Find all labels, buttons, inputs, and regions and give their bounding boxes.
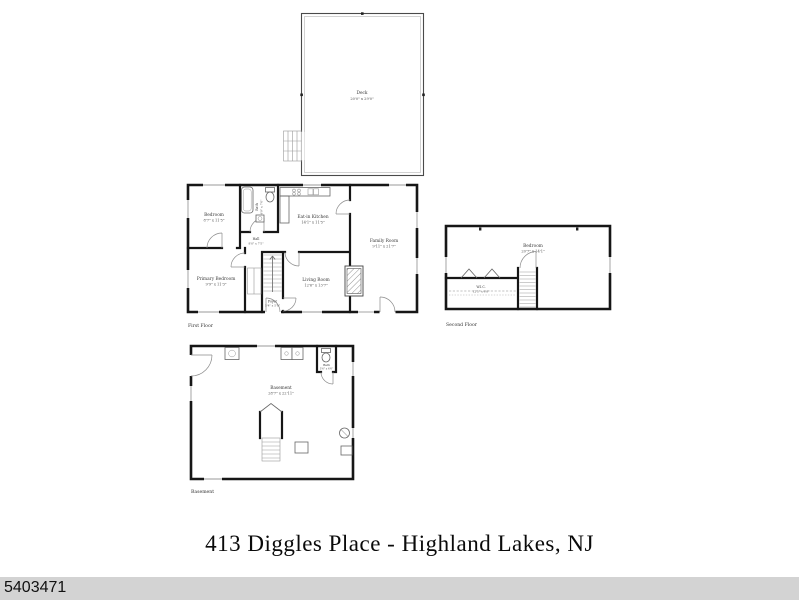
- second-floor-label: Second Floor: [446, 322, 478, 328]
- basement-plan: Bath 3'6" x 6'6" Basement: [189, 344, 355, 495]
- kitchen-label: Eat-in Kitchen: [297, 215, 328, 220]
- second-floor-stairs: [520, 272, 536, 307]
- second-floor-windows: [444, 257, 612, 273]
- first-floor-label: First Floor: [188, 323, 214, 329]
- living-room-label: Living Room: [302, 278, 329, 283]
- laundry-tub-icon: [281, 348, 303, 360]
- basement-room-label: Basement: [270, 386, 292, 391]
- utility-box-icon: [341, 446, 352, 455]
- second-floor-stair-door: [520, 252, 536, 269]
- first-floor-closet: [248, 268, 262, 294]
- primary-bedroom-label: Primary Bedroom: [197, 277, 236, 282]
- toilet-icon: [266, 188, 275, 203]
- basement-stairs: [260, 404, 282, 462]
- deck-stairs: [284, 131, 305, 161]
- hall-label: Hall: [253, 237, 260, 241]
- foyer-dims: 5'4" x 5'9": [265, 304, 281, 308]
- deck-room-dims: 20'0" x 29'0": [350, 97, 374, 101]
- basement-floor-label: Basement: [191, 489, 214, 495]
- water-heater-icon: [340, 428, 350, 438]
- bedroom-dims: 8'7" x 11'5": [203, 219, 224, 223]
- living-room-dims: 12'6" x 13'7": [304, 284, 328, 288]
- basement-room-dims: 28'7" x 22'11": [268, 392, 294, 396]
- second-floor-interior-walls: [446, 268, 537, 309]
- family-room-label: Family Room: [370, 239, 398, 244]
- tub-icon: [242, 187, 254, 213]
- basement-bath-dims: 3'6" x 6'6": [320, 366, 334, 370]
- wic-dims: 12'5" x 6'0": [473, 290, 491, 294]
- basement-bath: Bath 3'6" x 6'6": [320, 349, 334, 385]
- basement-windows: [189, 344, 355, 481]
- family-room-dims: 9'11" x 21'7": [372, 245, 396, 249]
- fireplace-icon: [345, 266, 363, 296]
- kitchen-sink-icon: [308, 189, 319, 195]
- stove-icon: [293, 189, 301, 195]
- bath-dims: 4'9" x 7'0": [260, 199, 264, 215]
- washer-icon: [225, 348, 239, 360]
- kitchen-dims: 14'1" x 11'5": [301, 221, 325, 225]
- furnace-icon: [295, 442, 308, 453]
- bedroom-label: Bedroom: [204, 213, 224, 218]
- hall-dims: 8'0" x 7'5": [248, 242, 264, 246]
- deck-plan: Deck 20'0" x 29'0": [284, 12, 425, 175]
- second-floor-plan: Bedroom 20'7" x 14'1" W.I.C. 12'5" x 6'0…: [444, 226, 612, 328]
- first-floor-interior-walls: [188, 185, 350, 312]
- first-floor-stairs: [264, 255, 282, 292]
- listing-id: 5403471: [0, 577, 799, 599]
- second-bedroom-label: Bedroom: [523, 244, 543, 249]
- deck-room-name: Deck: [357, 91, 368, 96]
- deck-post-mark: [361, 12, 364, 15]
- closet-hanger-marks: [461, 269, 500, 278]
- primary-bedroom-dims: 9'9" x 11'3": [205, 283, 226, 287]
- basement-bath-label: Bath: [323, 363, 330, 367]
- wic-label: W.I.C.: [476, 285, 485, 289]
- footer-bar: 5403471: [0, 577, 799, 600]
- second-bedroom-dims: 20'7" x 14'1": [521, 250, 545, 254]
- address-title: 413 Diggles Place - Highland Lakes, NJ: [0, 531, 799, 557]
- bath-label: Bath: [255, 203, 259, 211]
- first-floor-plan: Bedroom 8'7" x 11'5" Bath 4'9" x 7'0" Ha…: [186, 183, 419, 329]
- vent-mark: [479, 228, 481, 231]
- floorplan-canvas: Deck 20'0" x 29'0": [0, 0, 799, 600]
- basement-entry-door: [189, 355, 212, 376]
- sink-icon: [256, 215, 264, 222]
- basement-toilet-icon: [322, 349, 331, 363]
